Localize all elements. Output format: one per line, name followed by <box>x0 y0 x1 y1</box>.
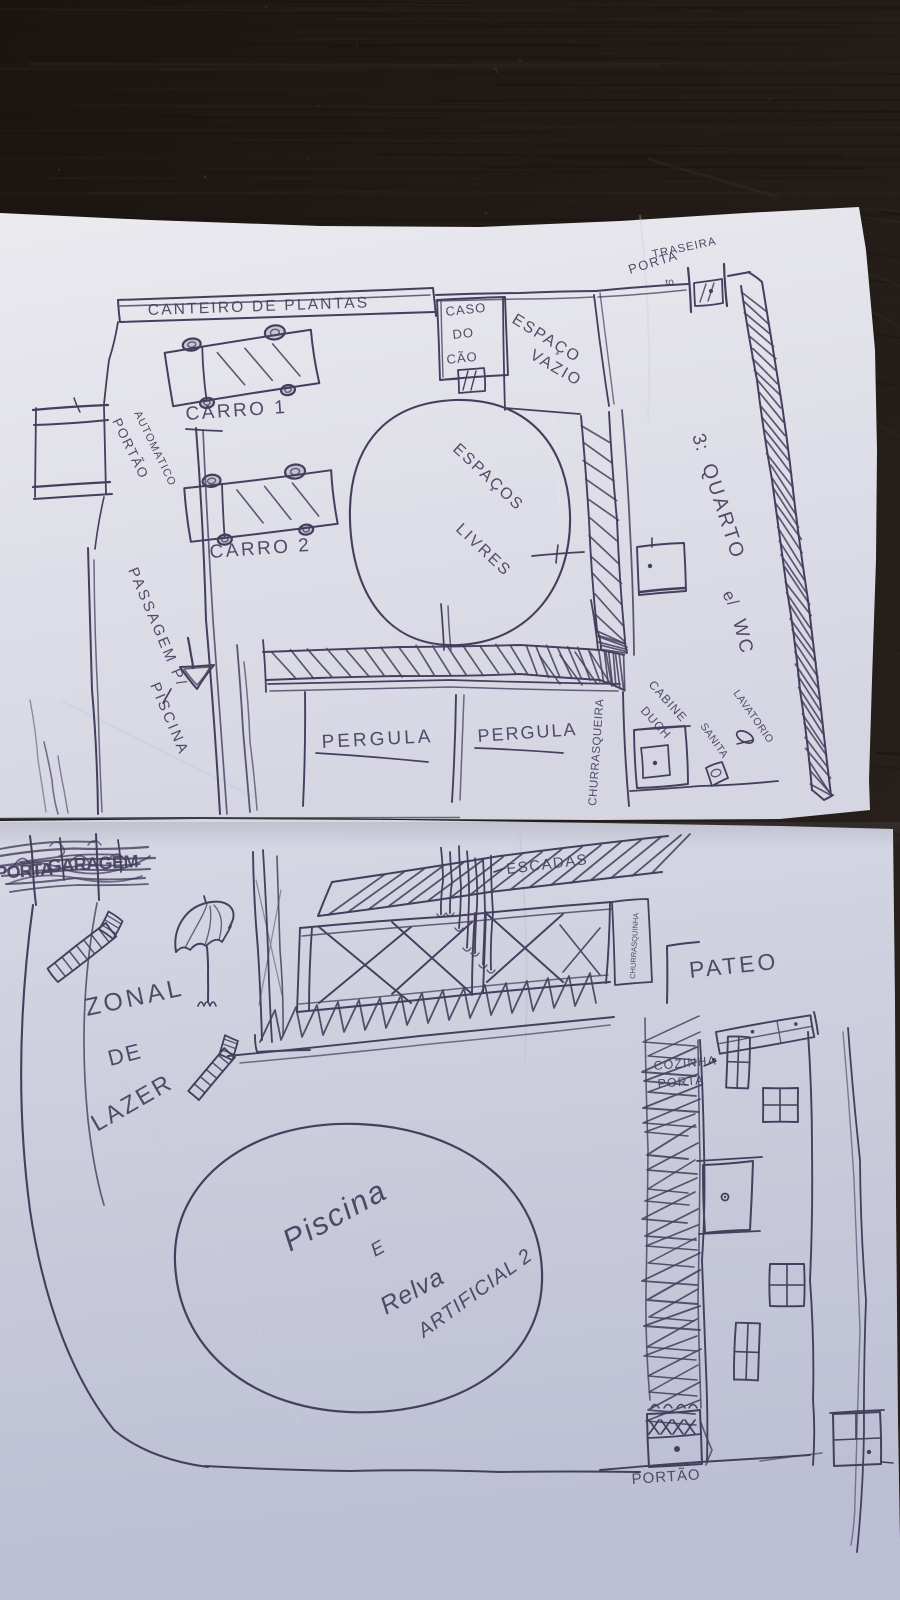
svg-text:DO: DO <box>452 325 475 342</box>
